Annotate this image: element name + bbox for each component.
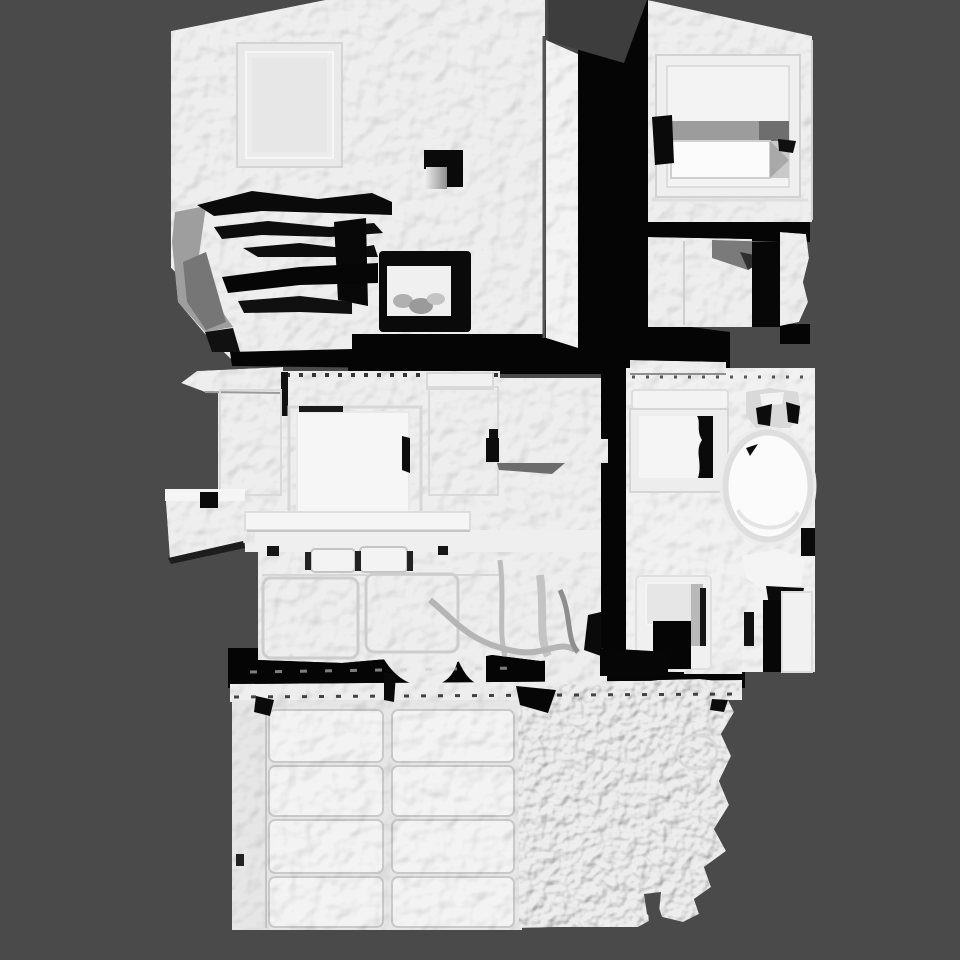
upper-left-window-inset bbox=[237, 43, 342, 167]
mesh-viewport[interactable] bbox=[0, 0, 960, 960]
drawer-front bbox=[360, 547, 407, 572]
bright-panel bbox=[297, 412, 409, 519]
wall-recess-large bbox=[379, 251, 471, 332]
shower-ledge bbox=[632, 390, 728, 409]
wall-recess-small bbox=[424, 150, 463, 189]
faucet-clutter bbox=[746, 388, 801, 428]
oval-tub bbox=[721, 428, 815, 544]
white-box bbox=[671, 141, 770, 178]
render-stage bbox=[0, 0, 960, 960]
kitchen-shelf bbox=[486, 437, 608, 464]
upper-right-window-inset bbox=[652, 40, 812, 220]
drawer-front bbox=[311, 549, 355, 572]
center-wall-column bbox=[546, 40, 578, 348]
counter-band bbox=[255, 530, 601, 552]
counter-ledge bbox=[245, 512, 470, 530]
